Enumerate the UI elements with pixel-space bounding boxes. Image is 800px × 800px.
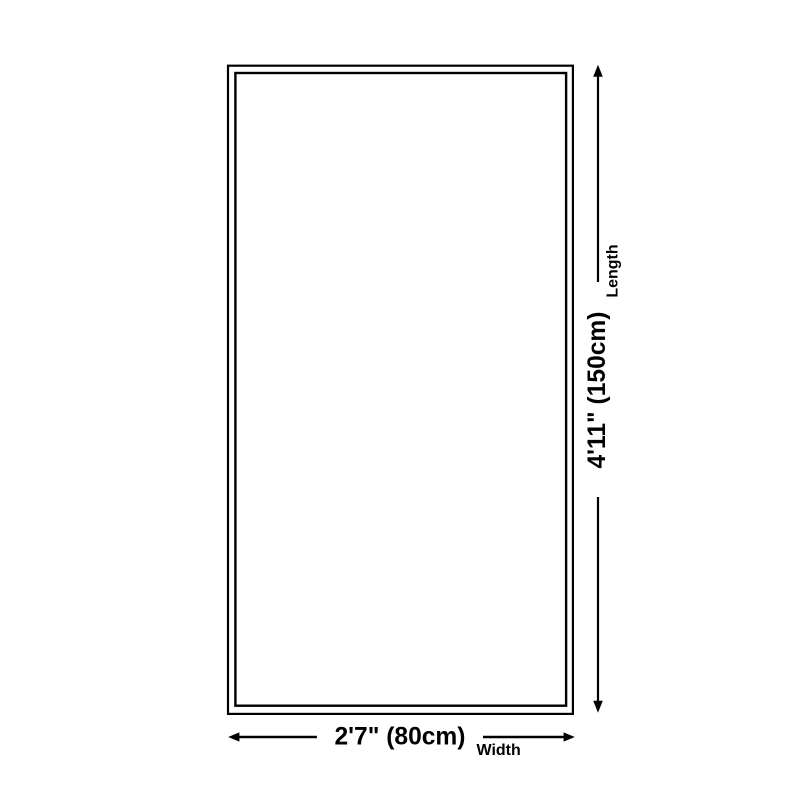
svg-text:Width: Width — [477, 742, 521, 759]
svg-text:Length: Length — [605, 244, 622, 297]
svg-text:4'11" (150cm): 4'11" (150cm) — [584, 312, 611, 469]
svg-text:2'7" (80cm): 2'7" (80cm) — [335, 724, 466, 751]
